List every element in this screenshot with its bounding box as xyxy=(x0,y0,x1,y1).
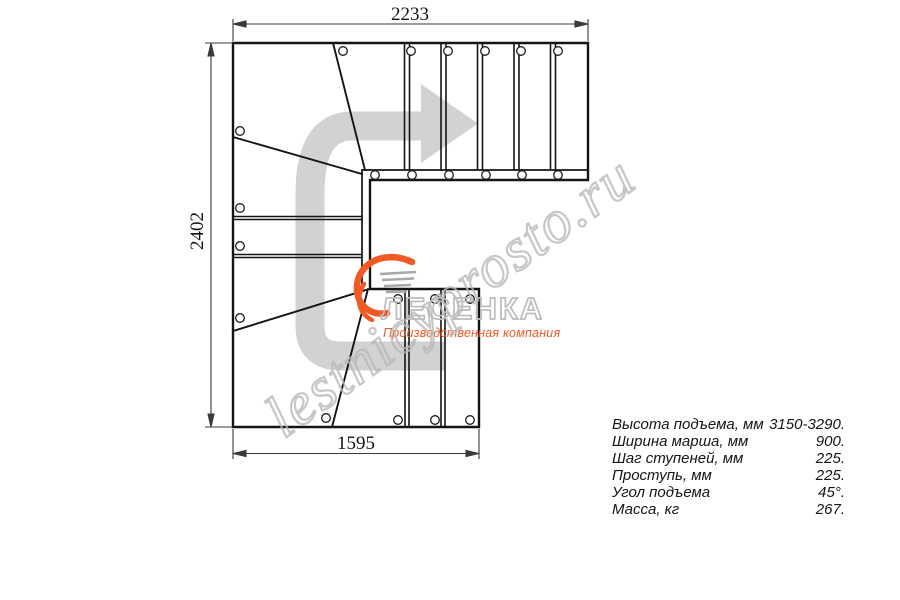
spec-label: Высота подъема, мм xyxy=(612,416,764,433)
screw-hole xyxy=(407,47,416,56)
dimension-left: 2402 xyxy=(187,43,232,427)
spec-row: Угол подъема 45°. xyxy=(612,484,845,501)
spec-label: Ширина марша, мм xyxy=(612,433,748,450)
spec-label: Проступь, мм xyxy=(612,467,712,484)
spec-label: Угол подъема xyxy=(612,484,710,501)
dim-arrowhead xyxy=(466,451,479,457)
screw-hole xyxy=(236,242,245,251)
spec-row: Проступь, мм 225. xyxy=(612,467,845,484)
screw-hole xyxy=(444,47,453,56)
dimensions: 2233 2402 1595 xyxy=(187,4,588,459)
spec-row: Высота подъема, мм 3150-3290. xyxy=(612,416,845,433)
screw-hole xyxy=(481,47,490,56)
dim-top-value: 2233 xyxy=(391,4,429,25)
spec-value: 3150-3290. xyxy=(769,416,845,433)
dim-left-value: 2402 xyxy=(187,212,208,250)
dim-arrowhead xyxy=(575,21,588,27)
screw-hole xyxy=(554,47,563,56)
screw-hole xyxy=(466,416,475,425)
screw-hole xyxy=(339,47,348,56)
screw-hole xyxy=(445,171,454,180)
screw-hole xyxy=(322,414,331,423)
dim-bottom-value: 1595 xyxy=(337,433,375,454)
spec-value: 900. xyxy=(816,433,845,450)
spec-row: Ширина марша, мм 900. xyxy=(612,433,845,450)
dimension-bottom: 1595 xyxy=(233,429,479,459)
dim-arrowhead xyxy=(233,21,246,27)
screw-hole xyxy=(394,416,403,425)
dim-arrowhead xyxy=(208,43,214,56)
screw-hole xyxy=(236,204,245,213)
screw-hole xyxy=(517,47,526,56)
spec-value: 225. xyxy=(816,450,845,467)
dim-arrowhead xyxy=(233,451,246,457)
spec-row: Масса, кг 267. xyxy=(612,501,845,518)
spec-label: Шаг ступеней, мм xyxy=(612,450,743,467)
spec-row: Шаг ступеней, мм 225. xyxy=(612,450,845,467)
screw-hole xyxy=(518,171,527,180)
spec-label: Масса, кг xyxy=(612,501,679,518)
screw-hole xyxy=(431,416,440,425)
stair-drawing-page: 2233 2402 1595 xyxy=(0,0,900,600)
spec-value: 45°. xyxy=(818,484,845,501)
screw-hole xyxy=(371,171,380,180)
dimension-top: 2233 xyxy=(233,4,588,41)
logo-tagline: Производственная компания xyxy=(383,326,560,340)
spec-value: 267. xyxy=(816,501,845,518)
spec-value: 225. xyxy=(816,467,845,484)
screw-hole xyxy=(236,314,245,323)
screw-hole xyxy=(482,171,491,180)
dim-arrowhead xyxy=(208,414,214,427)
screw-hole xyxy=(236,127,245,136)
logo-name: ЛЕСЕНКА xyxy=(381,291,544,327)
direction-arrow-head xyxy=(421,84,478,163)
screw-hole xyxy=(554,171,563,180)
winder-line-top-a xyxy=(333,43,365,170)
screw-hole xyxy=(408,171,417,180)
spec-table: Высота подъема, мм 3150-3290. Ширина мар… xyxy=(612,416,845,519)
